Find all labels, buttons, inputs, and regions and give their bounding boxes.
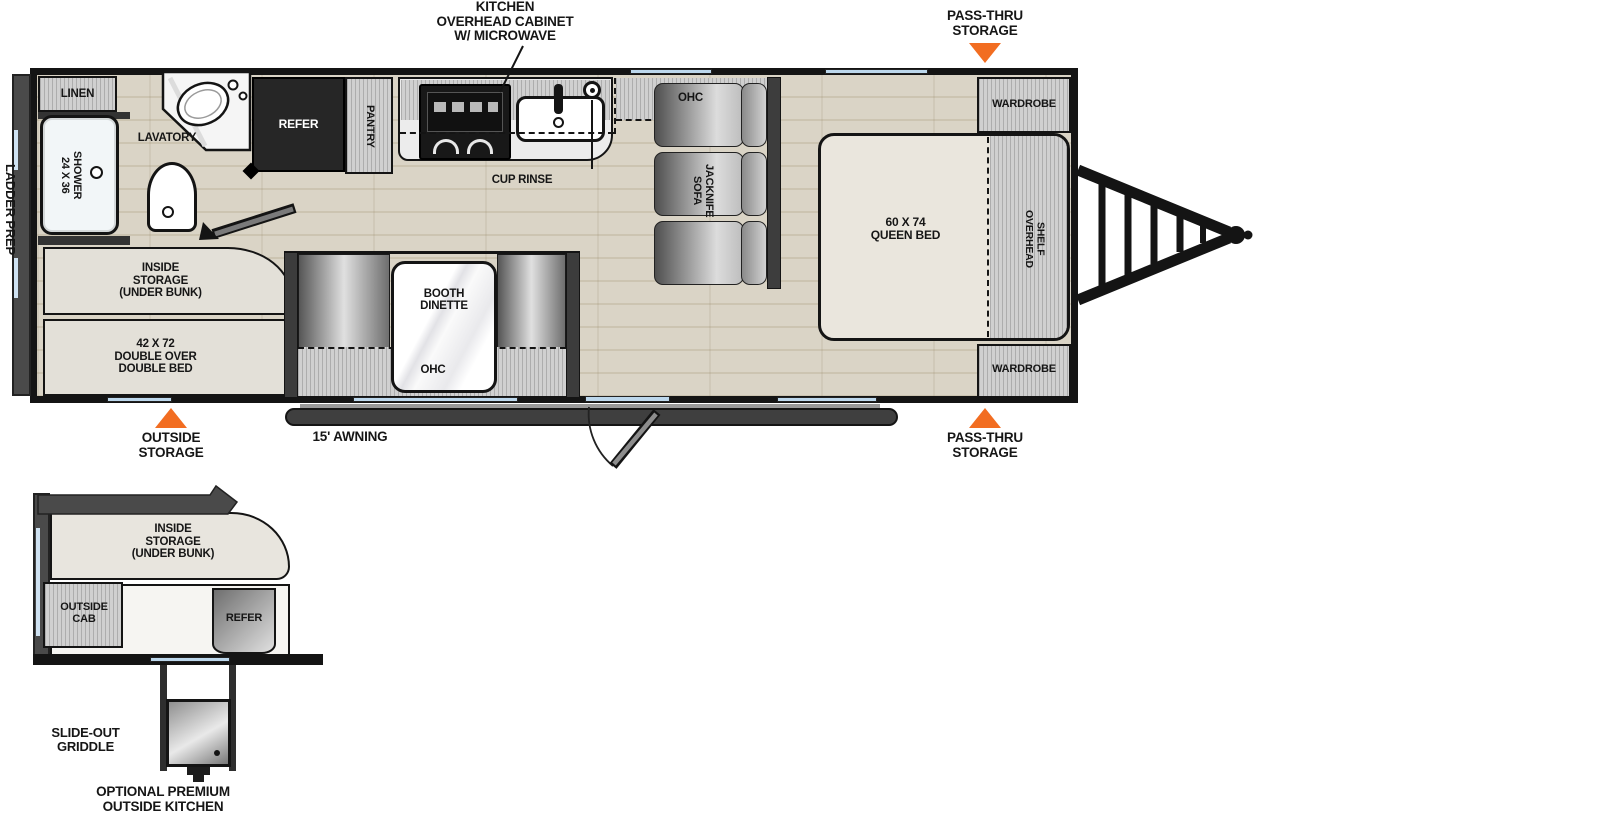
refer-label: REFER <box>252 77 345 172</box>
jacknife-sofa-label: JACKNIFE SOFA <box>676 132 728 250</box>
detail-outside-cab-label: OUTSIDE CAB <box>45 600 123 628</box>
detail-refer-label: REFER <box>213 611 275 626</box>
callout-kitchen-overhead: KITCHEN OVERHEAD CABINET W/ MICROWAVE <box>385 0 625 44</box>
hitch-coupler <box>1227 226 1245 244</box>
callout-pass-thru-top: PASS-THRU STORAGE <box>915 8 1055 40</box>
pantry-label: PANTRY <box>347 80 391 172</box>
wardrobe-bottom-label: WARDROBE <box>977 362 1071 377</box>
shower-label: 24 X 36 SHOWER <box>48 128 92 223</box>
pass-thru-bottom-arrow-icon <box>969 408 1001 428</box>
callout-outside-storage: OUTSIDE STORAGE <box>101 430 241 462</box>
wardrobe-top-label: WARDROBE <box>977 97 1071 112</box>
overhead-shelf-label: OVERHEAD SHELF <box>1010 186 1058 291</box>
lavatory-label: LAVATORY <box>126 131 208 146</box>
bath-faucet-dot <box>240 93 247 100</box>
inside-storage-label: INSIDE STORAGE (UNDER BUNK) <box>68 256 253 306</box>
diagram-linework <box>0 0 1600 815</box>
pass-thru-top-arrow-icon <box>969 43 1001 63</box>
queen-bed-label: 60 X 74 QUEEN BED <box>828 214 983 244</box>
hitch-coupler-tip <box>1244 231 1253 240</box>
callout-pass-thru-bottom: PASS-THRU STORAGE <box>915 430 1055 462</box>
detail-inside-storage-label: INSIDE STORAGE (UNDER BUNK) <box>88 518 258 566</box>
detail-roof-bar <box>38 486 237 514</box>
entry-door-swing <box>589 407 613 466</box>
floorplan-diagram: KITCHEN OVERHEAD CABINET W/ MICROWAVE PA… <box>0 0 1600 815</box>
kitchen-ohc-label: OHC <box>638 90 743 106</box>
kitchen-callout-leader <box>500 46 523 92</box>
dinette-ohc-label: OHC <box>388 362 478 378</box>
callout-ladder-prep: LADDER PREP <box>0 112 20 307</box>
outside-storage-arrow-icon <box>155 408 187 428</box>
cup-rinse-label: CUP RINSE <box>462 173 582 188</box>
callout-awning: 15' AWNING <box>285 429 415 445</box>
slide-out-griddle-label: SLIDE-OUT GRIDDLE <box>28 724 143 756</box>
optional-outside-kitchen-label: OPTIONAL PREMIUM OUTSIDE KITCHEN <box>68 784 258 815</box>
booth-dinette-label: BOOTH DINETTE <box>394 286 494 314</box>
bath-faucet-dot <box>229 81 238 90</box>
linen-label: LINEN <box>38 80 117 108</box>
double-bed-label: 42 X 72 DOUBLE OVER DOUBLE BED <box>58 332 253 382</box>
